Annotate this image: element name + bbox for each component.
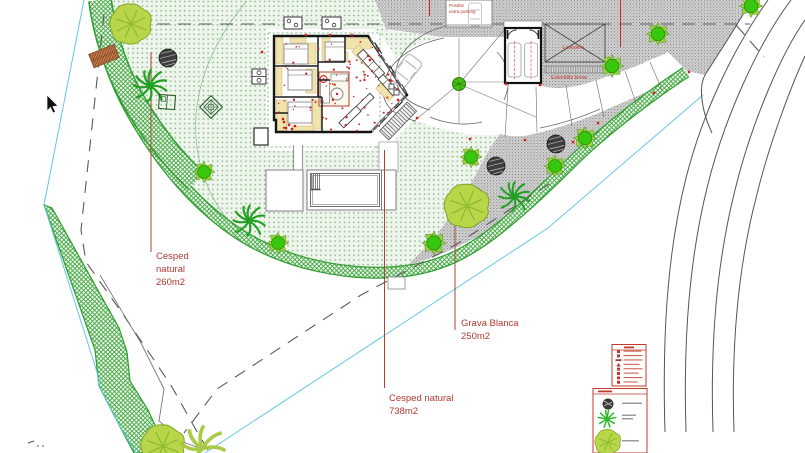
svg-text:Grava Blanca: Grava Blanca	[461, 318, 519, 329]
svg-text:738m2: 738m2	[389, 406, 418, 417]
svg-text:Posible: Posible	[449, 3, 465, 8]
svg-text:Cesped natural: Cesped natural	[389, 393, 453, 404]
svg-text:Estendido terras: Estendido terras	[551, 75, 588, 81]
svg-text:extra parking: extra parking	[449, 9, 476, 14]
svg-text:natural: natural	[156, 264, 185, 275]
svg-text:260m2: 260m2	[156, 277, 185, 288]
svg-text:Cesped: Cesped	[156, 251, 189, 262]
svg-text:250m2: 250m2	[461, 331, 490, 342]
svg-text:Lavadero: Lavadero	[563, 45, 584, 51]
